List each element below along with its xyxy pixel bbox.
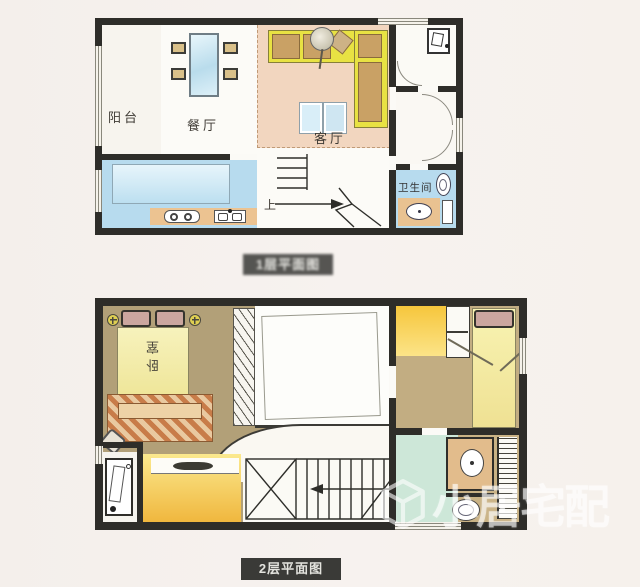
chair (171, 68, 186, 80)
void-area (255, 306, 389, 428)
stairs-floor1: 上 (257, 148, 389, 228)
bed: 卧室 (117, 327, 189, 395)
bedside-lamp-icon (189, 314, 201, 326)
pillow (121, 310, 151, 327)
dining-table (189, 33, 219, 97)
sink-basin (232, 213, 242, 221)
bedroom-label: 卧室 (144, 336, 163, 372)
wall (389, 306, 396, 366)
dresser-top (118, 403, 202, 419)
toilet-icon (436, 173, 451, 196)
washer-knob (126, 464, 131, 469)
wall (447, 428, 519, 435)
cabinet (442, 200, 453, 224)
utility-room (396, 25, 456, 86)
wardrobe (233, 308, 255, 426)
washer-drum (431, 32, 444, 47)
bedside-lamp-icon (107, 314, 119, 326)
watermark-cube-icon (380, 478, 426, 530)
sofa-cushion (358, 34, 382, 58)
toilet-seat (439, 179, 447, 191)
washer-knob (110, 506, 116, 512)
desk-area (143, 454, 241, 522)
cabinet-divider (447, 331, 468, 333)
window (95, 46, 102, 146)
bathroom1: 卫生间 (396, 170, 456, 228)
void-outline (261, 312, 381, 420)
balcony: 阳台 (102, 25, 162, 154)
window (95, 170, 102, 212)
kitchen (102, 160, 257, 228)
washer-drum (109, 465, 126, 502)
floor1-plan: 阳台 餐厅 客厅 (95, 18, 463, 235)
entry-hall (396, 92, 456, 164)
faucet-icon (228, 209, 232, 213)
dining-room: 餐厅 (161, 25, 257, 154)
chair (223, 42, 238, 54)
kitchen-sink (214, 210, 246, 223)
door-arc (397, 61, 422, 86)
sink-basin (218, 213, 228, 221)
vanity-counter (398, 198, 440, 226)
stove (164, 210, 200, 223)
wall (396, 428, 422, 435)
plant-icon (310, 27, 334, 51)
wall (102, 154, 230, 160)
drain-dot (418, 210, 421, 213)
chair (171, 42, 186, 54)
living-room: 客厅 (257, 25, 390, 148)
wall (438, 86, 456, 92)
sofa-cushion (358, 62, 382, 122)
window (95, 446, 103, 464)
dresser-rug (107, 394, 213, 442)
door-arc (422, 94, 453, 125)
watermark-text: 小居宅配 (432, 471, 608, 537)
wall (95, 228, 463, 235)
pillow (474, 310, 514, 328)
wall (95, 298, 527, 306)
wall (396, 164, 410, 170)
wall (396, 86, 418, 92)
window (378, 18, 428, 25)
wall (137, 448, 143, 522)
washer-knob (445, 44, 449, 48)
floorplan-photo: 阳台 餐厅 客厅 (0, 0, 640, 587)
watermark: 小居宅配 (380, 468, 640, 540)
tray-icon (173, 462, 213, 470)
floor2-caption: 2层平面图 (241, 558, 341, 580)
washing-machine-icon (427, 28, 450, 54)
sofa-cushion (272, 34, 300, 59)
chair (223, 68, 238, 80)
wall (95, 298, 103, 530)
floor1-caption: 1层平面图 (243, 254, 333, 275)
wall (389, 110, 396, 156)
balcony-label: 阳台 (108, 107, 140, 126)
wall (389, 25, 396, 87)
door-arc (422, 130, 453, 161)
window (519, 338, 527, 374)
wall (428, 164, 456, 170)
window (456, 118, 463, 152)
pillow (155, 310, 185, 327)
dining-label: 餐厅 (187, 115, 219, 134)
living-label: 客厅 (314, 128, 346, 147)
kitchen-island (112, 164, 230, 204)
desk2 (396, 306, 446, 356)
bedroom2 (396, 306, 519, 428)
burner-icon (184, 213, 192, 221)
wall (389, 170, 396, 228)
stairs-up-label: 上 (264, 196, 276, 213)
stairs-drawing (257, 148, 389, 228)
washing-machine-icon (105, 458, 133, 516)
drain-dot (470, 461, 474, 465)
bathroom-label: 卫生间 (398, 180, 433, 195)
balcony-floor2 (103, 452, 137, 522)
burner-icon (170, 213, 178, 221)
